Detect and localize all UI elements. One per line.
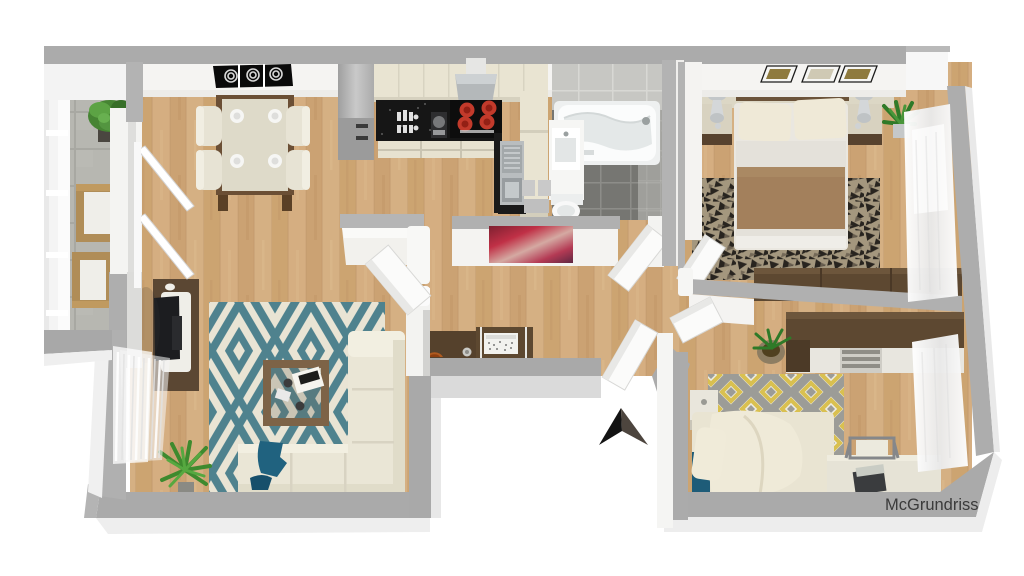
svg-text:McGrundriss: McGrundriss bbox=[885, 496, 979, 514]
